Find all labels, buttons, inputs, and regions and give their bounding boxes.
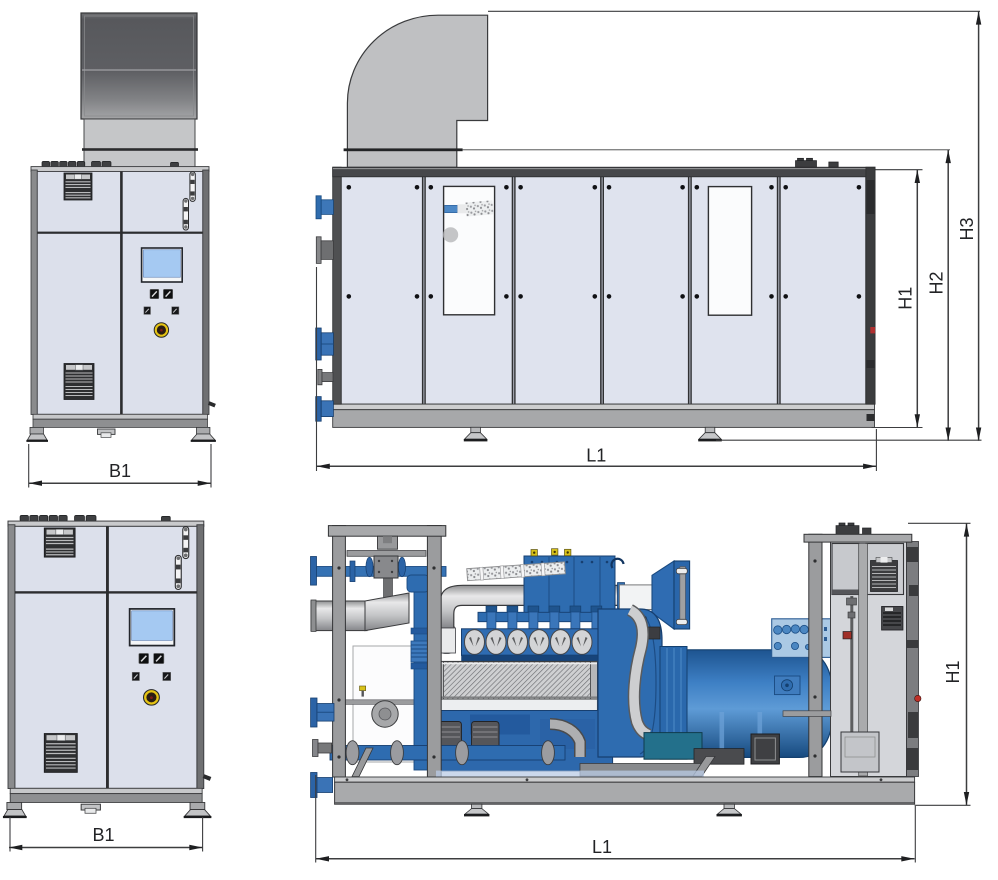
svg-text:H2: H2 <box>927 271 947 294</box>
svg-text:H3: H3 <box>957 217 977 240</box>
svg-text:L1: L1 <box>592 837 612 857</box>
svg-text:L1: L1 <box>586 446 606 466</box>
svg-text:B1: B1 <box>109 461 131 481</box>
svg-text:H1: H1 <box>896 287 916 310</box>
svg-text:H1: H1 <box>943 660 963 683</box>
svg-text:B1: B1 <box>92 825 114 845</box>
